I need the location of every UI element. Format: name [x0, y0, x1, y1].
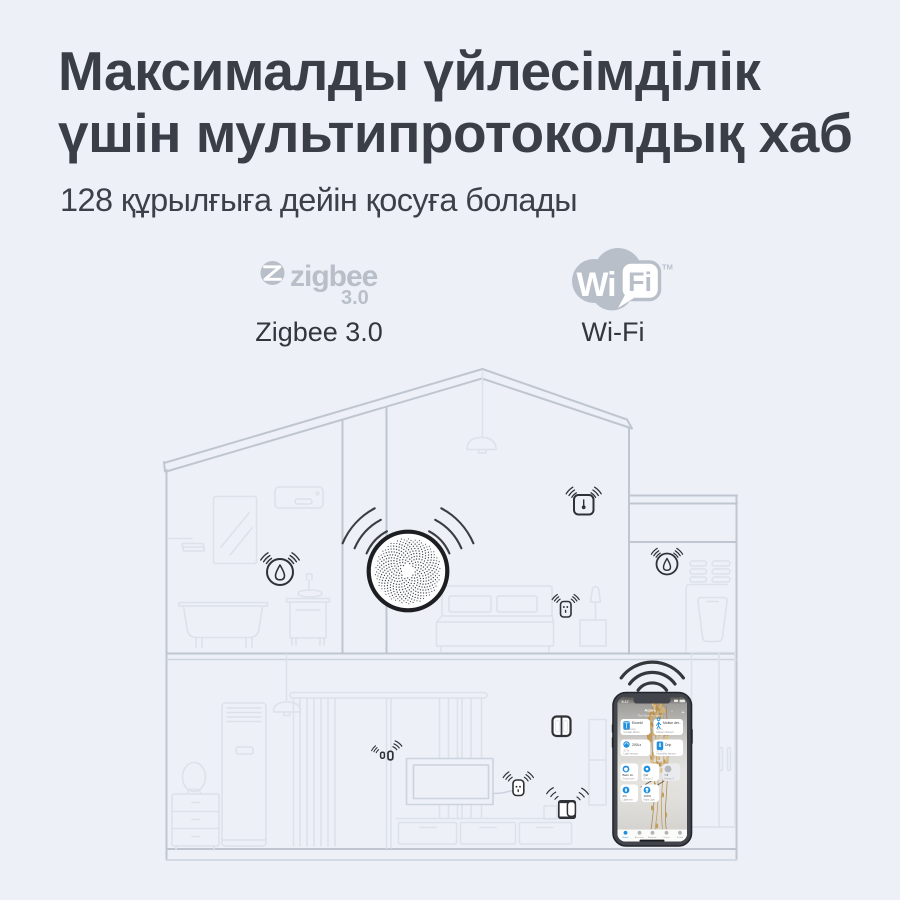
svg-text:5:17: 5:17 — [622, 700, 629, 704]
svg-text:Lightness: Lightness — [623, 798, 634, 801]
svg-text:TM: TM — [662, 263, 673, 272]
svg-text:+: + — [681, 710, 684, 716]
svg-text:Zigbee 3.0: Zigbee 3.0 — [255, 317, 383, 347]
svg-text:Wi-Fi: Wi-Fi — [582, 317, 645, 347]
svg-text:Scenes: Scenes — [621, 758, 631, 762]
svg-text:Wi: Wi — [576, 266, 615, 304]
svg-text:200Lx: 200Lx — [632, 743, 642, 747]
svg-text:3.0: 3.0 — [341, 287, 369, 309]
svg-text:Accessor.: Accessor. — [635, 836, 645, 839]
svg-text:Device 2: Device 2 — [644, 777, 654, 780]
svg-text:Fi: Fi — [628, 267, 652, 297]
svg-text:The New Standard: The New Standard — [637, 714, 662, 718]
svg-text:Home: Home — [623, 837, 630, 839]
svg-text:Aqara: Aqara — [644, 708, 656, 713]
svg-text:Night Light: Night Light — [644, 798, 656, 801]
svg-text:Automat.: Automat. — [648, 836, 657, 839]
svg-text:Drip: Drip — [665, 743, 671, 747]
svg-text:⌃: ⌃ — [670, 710, 673, 715]
svg-text:Scene: Scene — [663, 837, 670, 839]
svg-text:Good morn: Good morn — [623, 777, 636, 780]
svg-text:Humidity sensor: Humidity sensor — [657, 752, 676, 756]
svg-text:Motion Sensor: Motion Sensor — [657, 730, 674, 734]
svg-text:Curtain Motor: Curtain Motor — [624, 730, 640, 734]
svg-text:Profile: Profile — [677, 836, 684, 839]
svg-text:Enoeld: Enoeld — [632, 721, 643, 725]
svg-text:Device 3: Device 3 — [665, 777, 675, 780]
svg-text:Motion det..: Motion det.. — [663, 721, 681, 725]
svg-text:Light sensor: Light sensor — [624, 752, 639, 756]
